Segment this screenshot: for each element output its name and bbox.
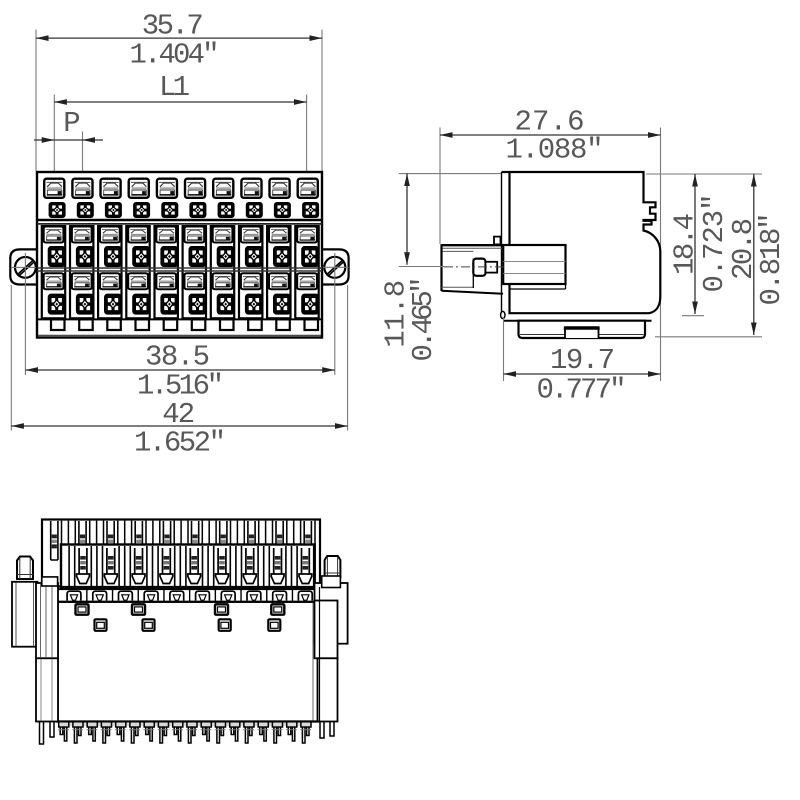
svg-text:0.818": 0.818" [755,213,788,306]
svg-text:1.404": 1.404" [130,39,220,72]
svg-text:0.777": 0.777" [537,374,627,407]
svg-text:L1: L1 [159,71,190,104]
svg-text:19.7: 19.7 [550,344,615,377]
svg-text:P: P [63,107,80,140]
svg-text:0.465": 0.465" [407,277,440,362]
svg-text:18.4: 18.4 [669,213,702,275]
svg-text:1.652": 1.652" [134,427,226,460]
svg-text:1.088": 1.088" [506,134,604,167]
